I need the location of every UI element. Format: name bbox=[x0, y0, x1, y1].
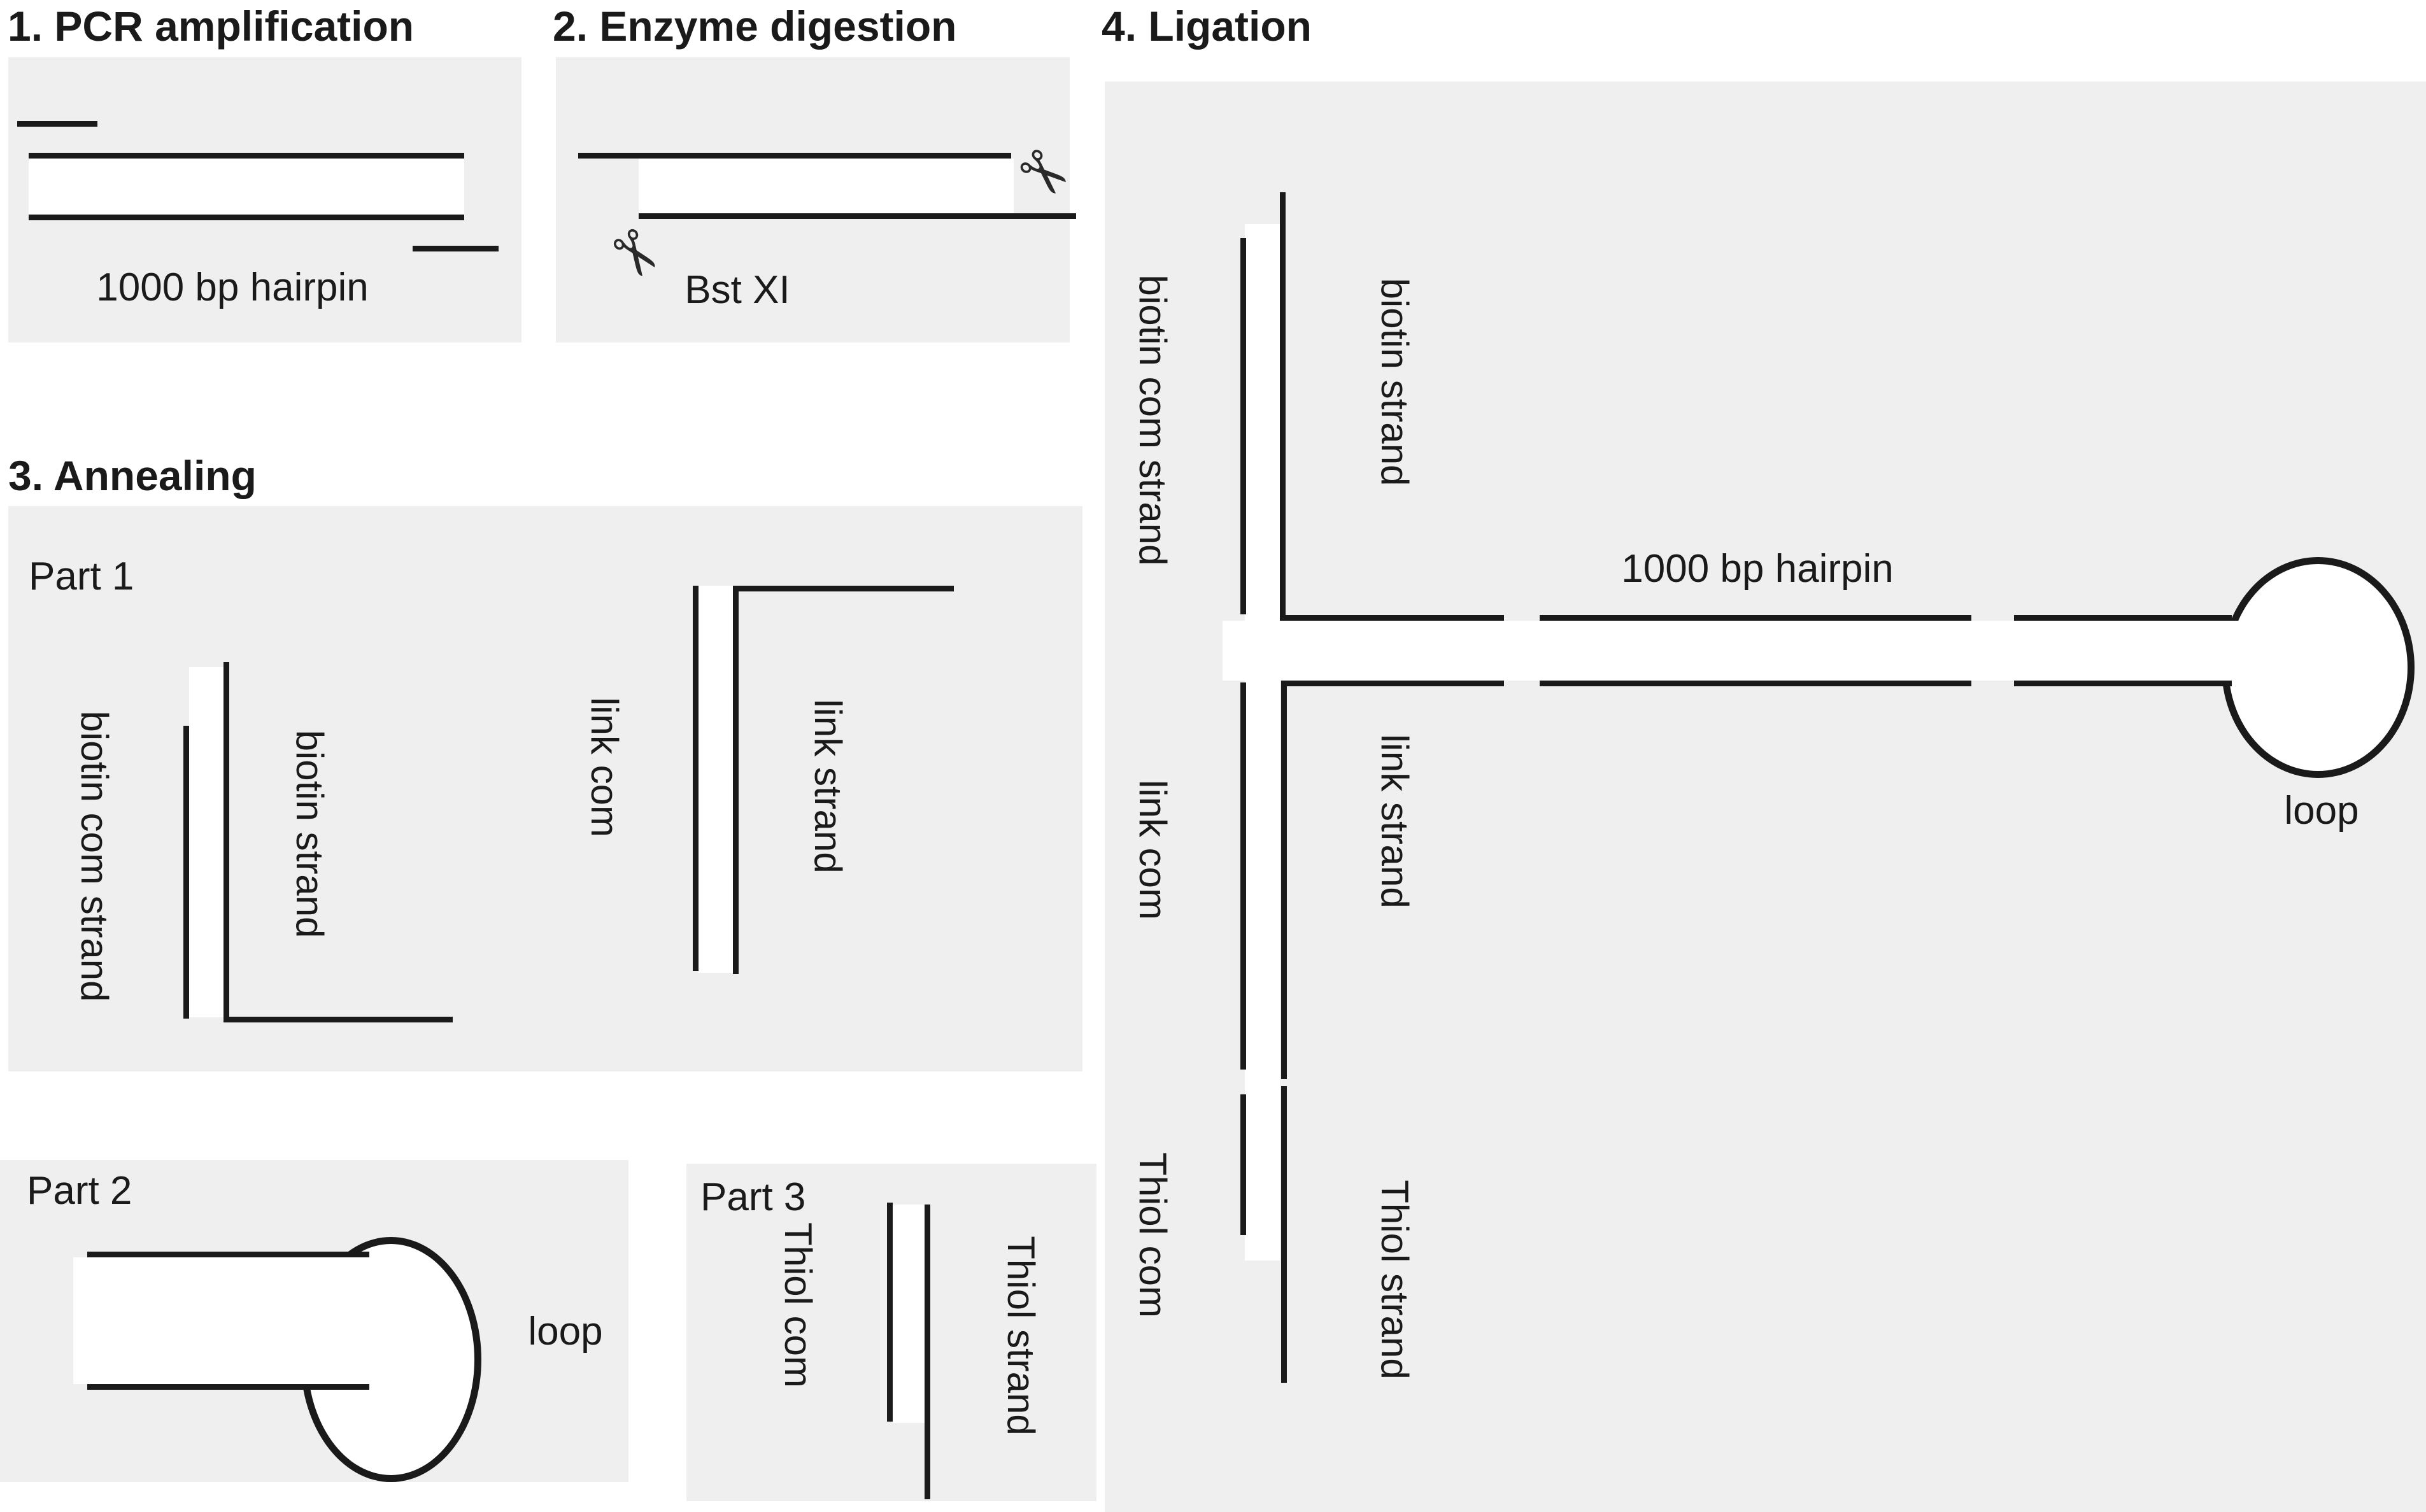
part1-link-strand-vertical-line bbox=[733, 586, 739, 974]
part2-stem-top-line bbox=[87, 1252, 369, 1257]
panel2-title: 2. Enzyme digestion bbox=[553, 0, 956, 53]
part1-biotin-strand-vertical-line bbox=[223, 662, 229, 1022]
part1-link-strand-overhang-line bbox=[733, 586, 954, 591]
panel4-bottom-strand-segment-1 bbox=[1281, 681, 1504, 686]
panel1-forward-primer-line bbox=[17, 121, 97, 127]
panel1-top-strand-line bbox=[29, 153, 464, 159]
part3-thiol-strand-line bbox=[925, 1205, 930, 1499]
part1-link-com-label: link com bbox=[585, 697, 623, 837]
panel1-title: 1. PCR amplification bbox=[8, 0, 414, 53]
dna-hairpin-protocol-figure: 1. PCR amplification 1000 bp hairpin 2. … bbox=[0, 0, 2426, 1512]
part3-thiol-strand-label: Thiol strand bbox=[1002, 1236, 1040, 1435]
panel1-reverse-primer-line bbox=[413, 246, 499, 251]
panel4-thiol-com-line bbox=[1240, 1094, 1246, 1235]
panel4-loop-label: loop bbox=[2284, 788, 2359, 833]
part1-biotin-strand-overhang-line bbox=[223, 1017, 453, 1022]
panel2-top-strand-line bbox=[578, 153, 1011, 159]
part1-link-duplex-gap bbox=[699, 586, 733, 973]
panel1-bottom-strand-line bbox=[29, 215, 464, 220]
panel2-enzyme-label: Bst XI bbox=[685, 267, 790, 313]
panel4-top-strand-segment-1 bbox=[1280, 615, 1504, 621]
panel4-title: 4. Ligation bbox=[1102, 0, 1312, 53]
panel4-bottom-strand-segment-3 bbox=[2014, 681, 2232, 686]
panel2-bottom-strand-line bbox=[639, 213, 1076, 219]
panel4-biotin-com-line bbox=[1240, 238, 1246, 614]
panel4-thiol-strand-label: Thiol strand bbox=[1375, 1180, 1414, 1379]
part2-loop-label: loop bbox=[528, 1309, 602, 1354]
part2-stem-bottom-line bbox=[87, 1384, 369, 1390]
part3-thiol-com-line bbox=[887, 1203, 893, 1422]
panel4-link-strand-line bbox=[1281, 681, 1287, 1079]
panel3-title: 3. Annealing bbox=[8, 449, 257, 502]
part1-label: Part 1 bbox=[29, 554, 134, 599]
panel4-link-strand-label: link strand bbox=[1375, 734, 1414, 908]
panel4-link-com-line bbox=[1240, 682, 1246, 1070]
panel4-biotin-strand-vertical-line bbox=[1280, 192, 1286, 621]
panel4-top-strand-segment-2 bbox=[1540, 615, 1971, 621]
part1-link-strand-label: link strand bbox=[809, 699, 847, 873]
panel4-vertical-duplex-gap bbox=[1245, 224, 1280, 1261]
panel4-thiol-com-label: Thiol com bbox=[1133, 1152, 1172, 1318]
part2-stem-gap bbox=[73, 1257, 395, 1384]
panel4-background-box bbox=[1105, 81, 2426, 1512]
panel1-duplex-gap bbox=[29, 159, 464, 215]
panel4-link-com-label: link com bbox=[1133, 780, 1172, 920]
part1-biotin-strand-label: biotin strand bbox=[290, 730, 329, 938]
panel4-duplex-gap-band bbox=[1223, 621, 2292, 681]
panel4-biotin-strand-label: biotin strand bbox=[1375, 278, 1414, 486]
panel1-caption: 1000 bp hairpin bbox=[96, 265, 368, 310]
panel4-thiol-strand-line bbox=[1281, 1086, 1287, 1383]
part3-thiol-com-label: Thiol com bbox=[779, 1222, 817, 1388]
panel4-biotin-com-strand-label: biotin com strand bbox=[1133, 275, 1172, 566]
part1-biotin-com-line bbox=[183, 726, 189, 1019]
part3-label: Part 3 bbox=[700, 1175, 805, 1220]
part1-link-com-line bbox=[693, 586, 699, 971]
panel2-duplex-gap bbox=[639, 159, 1014, 213]
part3-thiol-duplex-gap bbox=[893, 1205, 925, 1423]
part2-label: Part 2 bbox=[27, 1168, 132, 1213]
part1-biotin-duplex-gap bbox=[189, 667, 223, 1017]
panel4-top-strand-segment-3 bbox=[2014, 615, 2232, 621]
panel4-hairpin-label: 1000 bp hairpin bbox=[1621, 546, 1893, 591]
part1-biotin-com-strand-label: biotin com strand bbox=[75, 711, 113, 1002]
panel4-bottom-strand-segment-2 bbox=[1540, 681, 1971, 686]
